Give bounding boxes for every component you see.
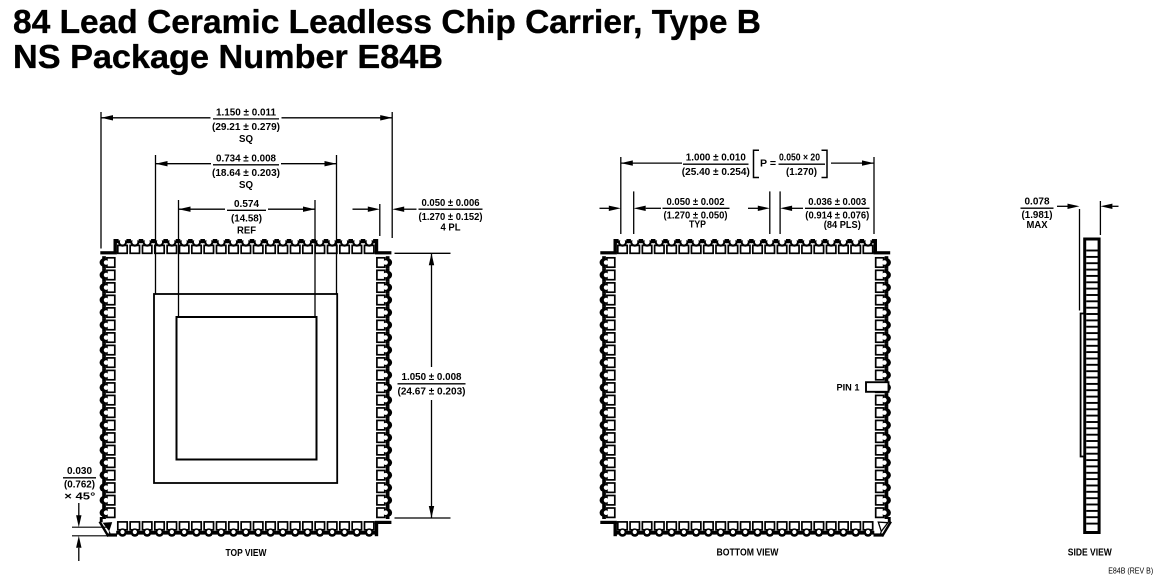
svg-text:1.000 ± 0.010: 1.000 ± 0.010 <box>686 152 746 163</box>
svg-text:(1.270 ± 0.152): (1.270 ± 0.152) <box>419 212 483 223</box>
svg-text:TYP: TYP <box>689 219 706 230</box>
svg-text:4 PL: 4 PL <box>441 222 461 233</box>
svg-text:(18.64 ± 0.203): (18.64 ± 0.203) <box>212 168 280 179</box>
svg-text:(1.270): (1.270) <box>786 167 817 178</box>
svg-text:× 45°: × 45° <box>64 492 95 503</box>
svg-text:PIN 1: PIN 1 <box>837 383 860 393</box>
svg-text:NS Package Number E84B: NS Package Number E84B <box>13 39 443 76</box>
svg-text:SQ: SQ <box>239 134 253 145</box>
svg-text:0.050 × 20: 0.050 × 20 <box>779 152 820 163</box>
svg-text:0.574: 0.574 <box>234 199 259 210</box>
svg-text:REF: REF <box>237 226 256 237</box>
svg-text:SIDE VIEW: SIDE VIEW <box>1068 548 1112 559</box>
svg-text:0.078: 0.078 <box>1025 197 1050 208</box>
svg-text:TOP VIEW: TOP VIEW <box>226 548 267 559</box>
svg-text:1.150 ± 0.011: 1.150 ± 0.011 <box>216 108 276 119</box>
svg-text:0.030: 0.030 <box>67 466 92 477</box>
svg-text:0.036 ± 0.003: 0.036 ± 0.003 <box>808 197 866 208</box>
svg-text:P =: P = <box>760 159 776 170</box>
svg-text:(0.762): (0.762) <box>64 480 95 491</box>
svg-text:(24.67 ± 0.203): (24.67 ± 0.203) <box>398 387 466 398</box>
svg-text:84 Lead Ceramic Leadless Chip: 84 Lead Ceramic Leadless Chip Carrier, T… <box>13 4 761 41</box>
svg-text:(84 PLS): (84 PLS) <box>824 220 861 231</box>
svg-text:(29.21 ± 0.279): (29.21 ± 0.279) <box>212 122 280 133</box>
svg-text:1.050 ± 0.008: 1.050 ± 0.008 <box>402 372 462 383</box>
svg-text:0.050 ± 0.002: 0.050 ± 0.002 <box>667 197 725 208</box>
svg-text:MAX: MAX <box>1027 220 1048 231</box>
svg-text:(14.58): (14.58) <box>231 214 262 225</box>
svg-text:BOTTOM VIEW: BOTTOM VIEW <box>717 548 779 559</box>
svg-text:(25.40 ± 0.254): (25.40 ± 0.254) <box>682 167 750 178</box>
svg-text:E84B (REV B): E84B (REV B) <box>1108 567 1153 576</box>
svg-text:0.050 ± 0.006: 0.050 ± 0.006 <box>422 198 480 209</box>
svg-text:0.734 ± 0.008: 0.734 ± 0.008 <box>216 154 276 165</box>
svg-text:SQ: SQ <box>239 180 253 191</box>
